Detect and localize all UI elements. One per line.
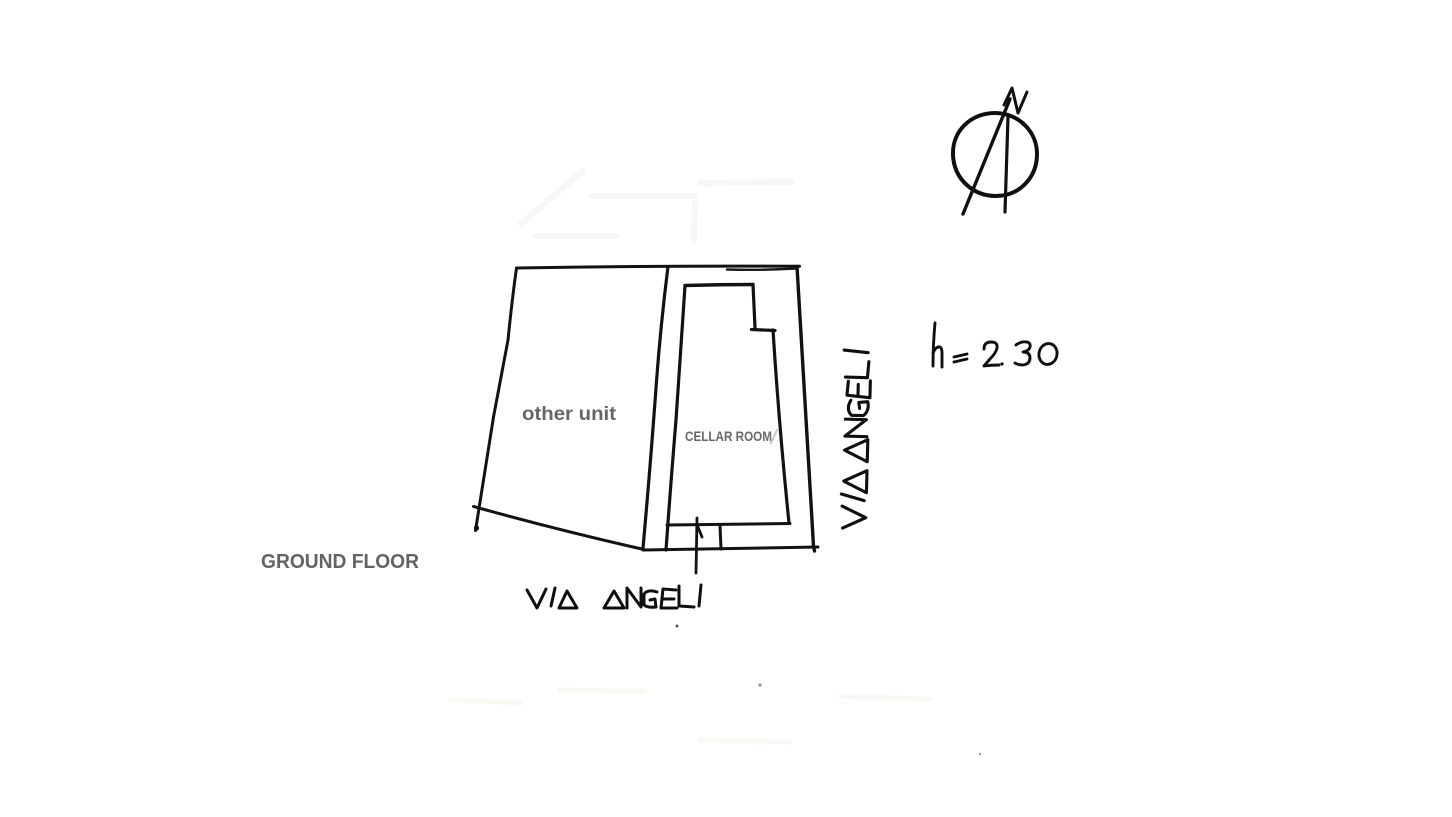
- svg-text:GROUND FLOOR: GROUND FLOOR: [261, 550, 419, 573]
- svg-text:CELLAR ROOM: CELLAR ROOM: [685, 429, 772, 444]
- svg-text:other unit: other unit: [522, 403, 617, 425]
